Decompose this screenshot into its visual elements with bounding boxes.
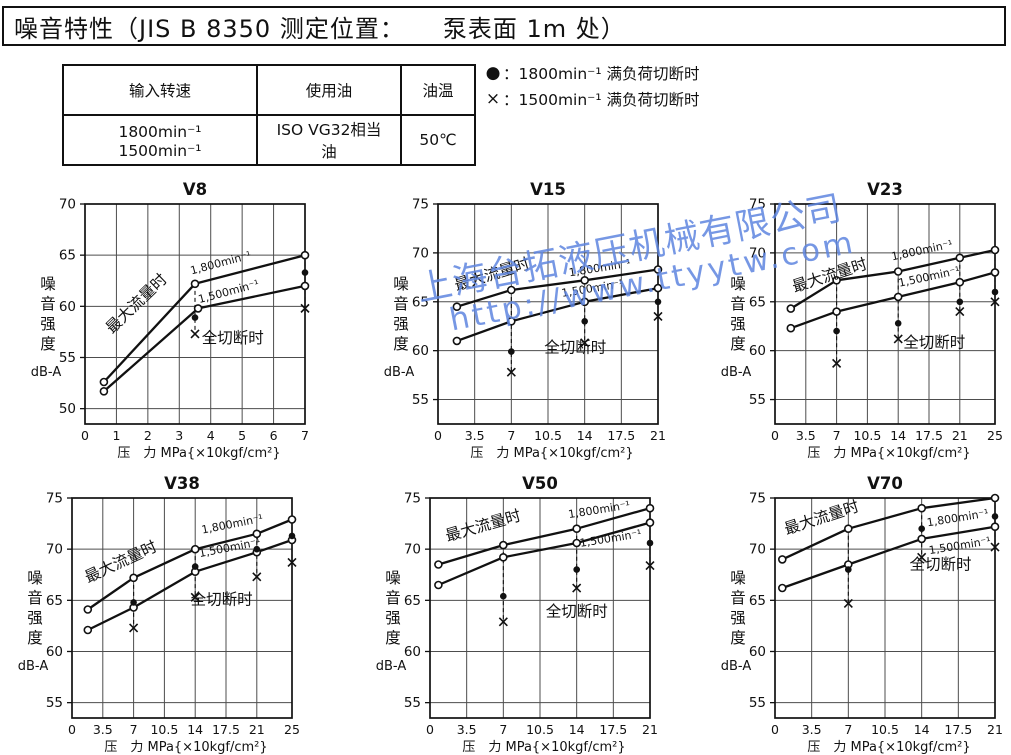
- open-circle-marker: [655, 285, 662, 292]
- filled-dot-marker: [508, 348, 515, 355]
- svg-text:0: 0: [426, 722, 434, 737]
- filled-dot-marker: [647, 540, 654, 547]
- chart-annotation: 最大流量时: [82, 538, 160, 587]
- chart-title: V23: [867, 180, 903, 199]
- charts-grid: 505560657001234567最大流量时1,800min⁻¹1,500mi…: [0, 0, 1011, 755]
- svg-text:25: 25: [284, 722, 300, 737]
- chart-v15: 556065707503.5710.51417.521最大流量时1,800min…: [363, 180, 675, 460]
- svg-text:10.5: 10.5: [853, 428, 881, 443]
- chart-annotation: 1,500min⁻¹: [928, 534, 992, 557]
- chart-v70: 556065707503.5710.51417.521最大流量时1,800min…: [700, 474, 1011, 754]
- y-unit-label: dB-A: [376, 659, 407, 674]
- open-circle-marker: [918, 535, 925, 542]
- open-circle-marker: [992, 523, 999, 530]
- x-axis-label: 压 力 MPa{×10kgf/cm²}: [470, 446, 633, 460]
- chart-svg: 556065707503.5710.51417.52125最大流量时1,800m…: [700, 180, 1011, 460]
- open-circle-marker: [289, 516, 296, 523]
- chart-v8: 505560657001234567最大流量时1,800min⁻¹1,500mi…: [10, 180, 322, 460]
- chart-v50: 556065707503.5710.51417.521最大流量时1,800min…: [355, 474, 667, 754]
- svg-text:2: 2: [144, 428, 152, 443]
- filled-dot-marker: [192, 314, 199, 321]
- open-circle-marker: [453, 337, 460, 344]
- open-circle-marker: [192, 280, 199, 287]
- svg-text:3.5: 3.5: [93, 722, 113, 737]
- svg-text:70: 70: [59, 197, 76, 213]
- x-axis-label: 压 力 MPa{×10kgf/cm²}: [807, 740, 970, 754]
- svg-text:60: 60: [749, 343, 766, 359]
- chart-svg: 556065707503.5710.51417.521最大流量时1,800min…: [700, 474, 1011, 754]
- filled-dot-marker: [289, 533, 296, 540]
- svg-text:70: 70: [404, 542, 421, 558]
- open-circle-marker: [647, 505, 654, 512]
- svg-text:度: 度: [730, 629, 746, 647]
- chart-annotation: 全切断时: [191, 590, 253, 608]
- svg-text:强: 强: [27, 609, 43, 627]
- svg-text:10.5: 10.5: [150, 722, 178, 737]
- svg-text:度: 度: [27, 629, 43, 647]
- open-circle-marker: [992, 247, 999, 254]
- svg-text:音: 音: [27, 589, 43, 607]
- svg-text:21: 21: [987, 722, 1003, 737]
- chart-annotation: 全切断时: [202, 329, 264, 347]
- svg-text:65: 65: [404, 593, 421, 609]
- svg-text:70: 70: [749, 245, 766, 261]
- svg-text:7: 7: [499, 722, 507, 737]
- svg-text:14: 14: [569, 722, 585, 737]
- svg-text:0: 0: [771, 428, 779, 443]
- svg-text:3.5: 3.5: [796, 428, 816, 443]
- chart-annotation: 全切断时: [546, 603, 608, 621]
- svg-text:5: 5: [238, 428, 246, 443]
- svg-text:14: 14: [914, 722, 930, 737]
- chart-annotation: 1,500min⁻¹: [198, 535, 262, 560]
- open-circle-marker: [655, 266, 662, 273]
- open-circle-marker: [84, 606, 91, 613]
- chart-annotation: 最大流量时: [790, 255, 869, 296]
- svg-text:度: 度: [730, 335, 746, 353]
- svg-text:75: 75: [46, 491, 63, 507]
- svg-text:7: 7: [507, 428, 515, 443]
- chart-title: V8: [183, 180, 207, 199]
- filled-dot-marker: [581, 318, 588, 325]
- chart-annotation: 1,800min⁻¹: [890, 238, 954, 264]
- svg-text:噪: 噪: [27, 569, 43, 587]
- svg-text:10.5: 10.5: [871, 722, 899, 737]
- svg-text:强: 强: [393, 315, 409, 333]
- y-unit-label: dB-A: [384, 365, 415, 380]
- svg-text:55: 55: [412, 392, 429, 408]
- open-circle-marker: [435, 561, 442, 568]
- svg-text:14: 14: [577, 428, 593, 443]
- chart-title: V38: [164, 474, 200, 493]
- svg-text:强: 强: [385, 609, 401, 627]
- svg-text:65: 65: [412, 294, 429, 310]
- svg-text:噪: 噪: [40, 275, 56, 293]
- svg-text:10.5: 10.5: [534, 428, 562, 443]
- svg-text:度: 度: [393, 335, 409, 353]
- svg-text:噪: 噪: [730, 569, 746, 587]
- filled-dot-marker: [845, 566, 852, 573]
- chart-title: V15: [530, 180, 566, 199]
- svg-text:55: 55: [59, 350, 76, 366]
- open-circle-marker: [833, 308, 840, 315]
- open-circle-marker: [895, 293, 902, 300]
- chart-annotation: 全切断时: [544, 339, 606, 357]
- y-unit-label: dB-A: [18, 659, 49, 674]
- svg-text:25: 25: [987, 428, 1003, 443]
- svg-text:55: 55: [404, 695, 421, 711]
- svg-text:17.5: 17.5: [212, 722, 240, 737]
- svg-text:7: 7: [833, 428, 841, 443]
- open-circle-marker: [302, 282, 309, 289]
- filled-dot-marker: [192, 563, 199, 570]
- open-circle-marker: [500, 542, 507, 549]
- chart-annotation: 1,800min⁻¹: [189, 249, 253, 278]
- svg-text:强: 强: [730, 609, 746, 627]
- open-circle-marker: [500, 554, 507, 561]
- open-circle-marker: [84, 627, 91, 634]
- x-axis-label: 压 力 MPa{×10kgf/cm²}: [807, 446, 970, 460]
- open-circle-marker: [787, 325, 794, 332]
- open-circle-marker: [100, 388, 107, 395]
- svg-text:60: 60: [59, 299, 76, 315]
- svg-text:3.5: 3.5: [802, 722, 822, 737]
- filled-dot-marker: [895, 320, 902, 327]
- svg-text:0: 0: [68, 722, 76, 737]
- cross-marker: [191, 330, 199, 338]
- open-circle-marker: [302, 252, 309, 259]
- svg-text:0: 0: [81, 428, 89, 443]
- svg-text:21: 21: [952, 428, 968, 443]
- svg-text:60: 60: [749, 644, 766, 660]
- open-circle-marker: [435, 582, 442, 589]
- chart-annotation: 1,800min⁻¹: [568, 257, 632, 280]
- svg-text:音: 音: [730, 295, 746, 313]
- svg-text:55: 55: [46, 695, 63, 711]
- svg-text:60: 60: [404, 644, 421, 660]
- svg-text:3.5: 3.5: [457, 722, 477, 737]
- open-circle-marker: [779, 556, 786, 563]
- chart-title: V70: [867, 474, 903, 493]
- svg-text:65: 65: [46, 593, 63, 609]
- chart-svg: 505560657001234567最大流量时1,800min⁻¹1,500mi…: [10, 180, 322, 460]
- open-circle-marker: [787, 305, 794, 312]
- chart-annotation: 1,800min⁻¹: [926, 507, 990, 530]
- y-unit-label: dB-A: [31, 365, 62, 380]
- open-circle-marker: [573, 525, 580, 532]
- svg-text:4: 4: [207, 428, 215, 443]
- open-circle-marker: [992, 269, 999, 276]
- svg-text:75: 75: [749, 197, 766, 213]
- svg-text:21: 21: [650, 428, 666, 443]
- svg-text:50: 50: [59, 401, 76, 417]
- svg-text:3: 3: [175, 428, 183, 443]
- svg-text:60: 60: [46, 644, 63, 660]
- open-circle-marker: [845, 525, 852, 532]
- open-circle-marker: [992, 495, 999, 502]
- y-unit-label: dB-A: [721, 659, 752, 674]
- open-circle-marker: [956, 254, 963, 261]
- filled-dot-marker: [573, 566, 580, 573]
- filled-dot-marker: [130, 599, 137, 606]
- svg-text:噪: 噪: [393, 275, 409, 293]
- svg-text:噪: 噪: [730, 275, 746, 293]
- svg-text:55: 55: [749, 392, 766, 408]
- svg-text:60: 60: [412, 343, 429, 359]
- svg-text:70: 70: [749, 542, 766, 558]
- svg-text:7: 7: [130, 722, 138, 737]
- chart-annotation: 全切断时: [909, 556, 971, 574]
- x-axis-label: 压 力 MPa{×10kgf/cm²}: [117, 446, 280, 460]
- filled-dot-marker: [833, 328, 840, 335]
- open-circle-marker: [581, 298, 588, 305]
- filled-dot-marker: [992, 513, 999, 520]
- open-circle-marker: [453, 303, 460, 310]
- filled-dot-marker: [500, 593, 507, 600]
- open-circle-marker: [779, 585, 786, 592]
- svg-text:强: 强: [730, 315, 746, 333]
- svg-text:17.5: 17.5: [599, 722, 627, 737]
- open-circle-marker: [956, 279, 963, 286]
- svg-text:17.5: 17.5: [915, 428, 943, 443]
- chart-annotation: 1,500min⁻¹: [579, 527, 643, 550]
- svg-text:75: 75: [404, 491, 421, 507]
- svg-text:度: 度: [385, 629, 401, 647]
- svg-text:70: 70: [412, 245, 429, 261]
- svg-text:14: 14: [890, 428, 906, 443]
- chart-annotation: 最大流量时: [443, 507, 522, 546]
- catalog-page: 噪音特性（JIS B 8350 测定位置： 泵表面 1m 处） 输入转速 使用油…: [0, 0, 1011, 755]
- svg-text:75: 75: [412, 197, 429, 213]
- svg-text:1: 1: [112, 428, 120, 443]
- svg-text:17.5: 17.5: [607, 428, 635, 443]
- chart-annotation: 最大流量时: [102, 270, 170, 337]
- x-axis-label: 压 力 MPa{×10kgf/cm²}: [104, 740, 267, 754]
- svg-text:75: 75: [749, 491, 766, 507]
- open-circle-marker: [100, 379, 107, 386]
- svg-text:21: 21: [249, 722, 265, 737]
- filled-dot-marker: [302, 269, 309, 276]
- svg-text:65: 65: [59, 248, 76, 264]
- open-circle-marker: [647, 519, 654, 526]
- svg-text:6: 6: [270, 428, 278, 443]
- svg-text:0: 0: [434, 428, 442, 443]
- svg-text:音: 音: [393, 295, 409, 313]
- svg-text:10.5: 10.5: [526, 722, 554, 737]
- svg-text:音: 音: [730, 589, 746, 607]
- svg-text:0: 0: [771, 722, 779, 737]
- svg-text:7: 7: [844, 722, 852, 737]
- open-circle-marker: [130, 574, 137, 581]
- open-circle-marker: [508, 318, 515, 325]
- chart-svg: 556065707503.5710.51417.521最大流量时1,800min…: [363, 180, 675, 460]
- open-circle-marker: [508, 287, 515, 294]
- chart-svg: 556065707503.5710.51417.521最大流量时1,800min…: [355, 474, 667, 754]
- chart-v38: 556065707503.5710.51417.52125最大流量时1,800m…: [0, 474, 309, 754]
- svg-text:70: 70: [46, 542, 63, 558]
- chart-title: V50: [522, 474, 558, 493]
- svg-text:14: 14: [187, 722, 203, 737]
- y-unit-label: dB-A: [721, 365, 752, 380]
- chart-annotation: 全切断时: [903, 334, 965, 352]
- svg-text:噪: 噪: [385, 569, 401, 587]
- svg-text:音: 音: [385, 589, 401, 607]
- chart-v23: 556065707503.5710.51417.52125最大流量时1,800m…: [700, 180, 1011, 460]
- svg-text:7: 7: [301, 428, 309, 443]
- svg-text:度: 度: [40, 335, 56, 353]
- filled-dot-marker: [992, 289, 999, 296]
- svg-text:音: 音: [40, 295, 56, 313]
- filled-dot-marker: [655, 299, 662, 306]
- open-circle-marker: [895, 268, 902, 275]
- svg-text:强: 强: [40, 315, 56, 333]
- x-axis-label: 压 力 MPa{×10kgf/cm²}: [462, 740, 625, 754]
- filled-dot-marker: [957, 299, 964, 306]
- svg-text:3.5: 3.5: [465, 428, 485, 443]
- svg-text:17.5: 17.5: [944, 722, 972, 737]
- chart-svg: 556065707503.5710.51417.52125最大流量时1,800m…: [0, 474, 309, 754]
- svg-text:55: 55: [749, 695, 766, 711]
- svg-text:65: 65: [749, 593, 766, 609]
- filled-dot-marker: [918, 525, 925, 532]
- series-max-flow-1500: [457, 288, 658, 341]
- open-circle-marker: [918, 505, 925, 512]
- svg-text:65: 65: [749, 294, 766, 310]
- svg-text:21: 21: [642, 722, 658, 737]
